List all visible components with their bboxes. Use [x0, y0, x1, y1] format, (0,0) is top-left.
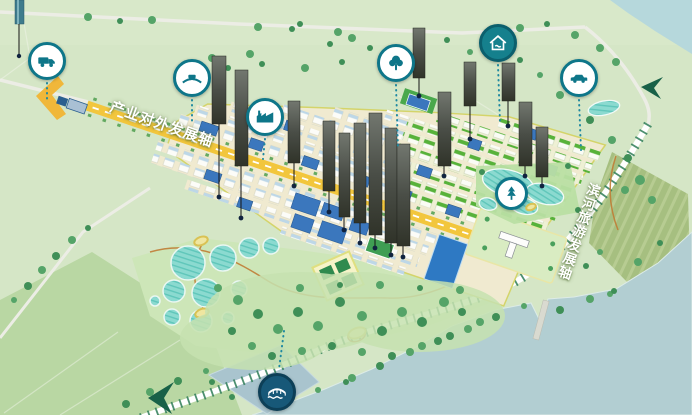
homestay-icon[interactable] [479, 24, 517, 62]
car-glyph [568, 67, 590, 89]
bridge-car-icon[interactable] [173, 59, 211, 97]
homestay-glyph [487, 32, 509, 54]
park-tree-icon[interactable] [495, 177, 528, 210]
masterplan-canvas: 产业对外发展轴 滨河旅游发展轴 [0, 0, 692, 415]
tree-icon[interactable] [377, 44, 415, 82]
factory-icon[interactable] [246, 98, 284, 136]
bridge-car-glyph [181, 67, 203, 89]
park-tree-glyph [502, 184, 521, 203]
tree-glyph [385, 52, 407, 74]
truck-icon[interactable] [28, 42, 66, 80]
factory-glyph [254, 106, 276, 128]
lake-bridge-glyph [266, 381, 288, 403]
tower-marker[interactable] [397, 144, 410, 259]
tower-marker[interactable] [438, 92, 451, 178]
lake-bridge-icon[interactable] [258, 373, 296, 411]
car-icon[interactable] [560, 59, 598, 97]
truck-glyph [36, 50, 58, 72]
tower-marker[interactable] [385, 128, 397, 257]
tower-marker[interactable] [369, 113, 382, 250]
